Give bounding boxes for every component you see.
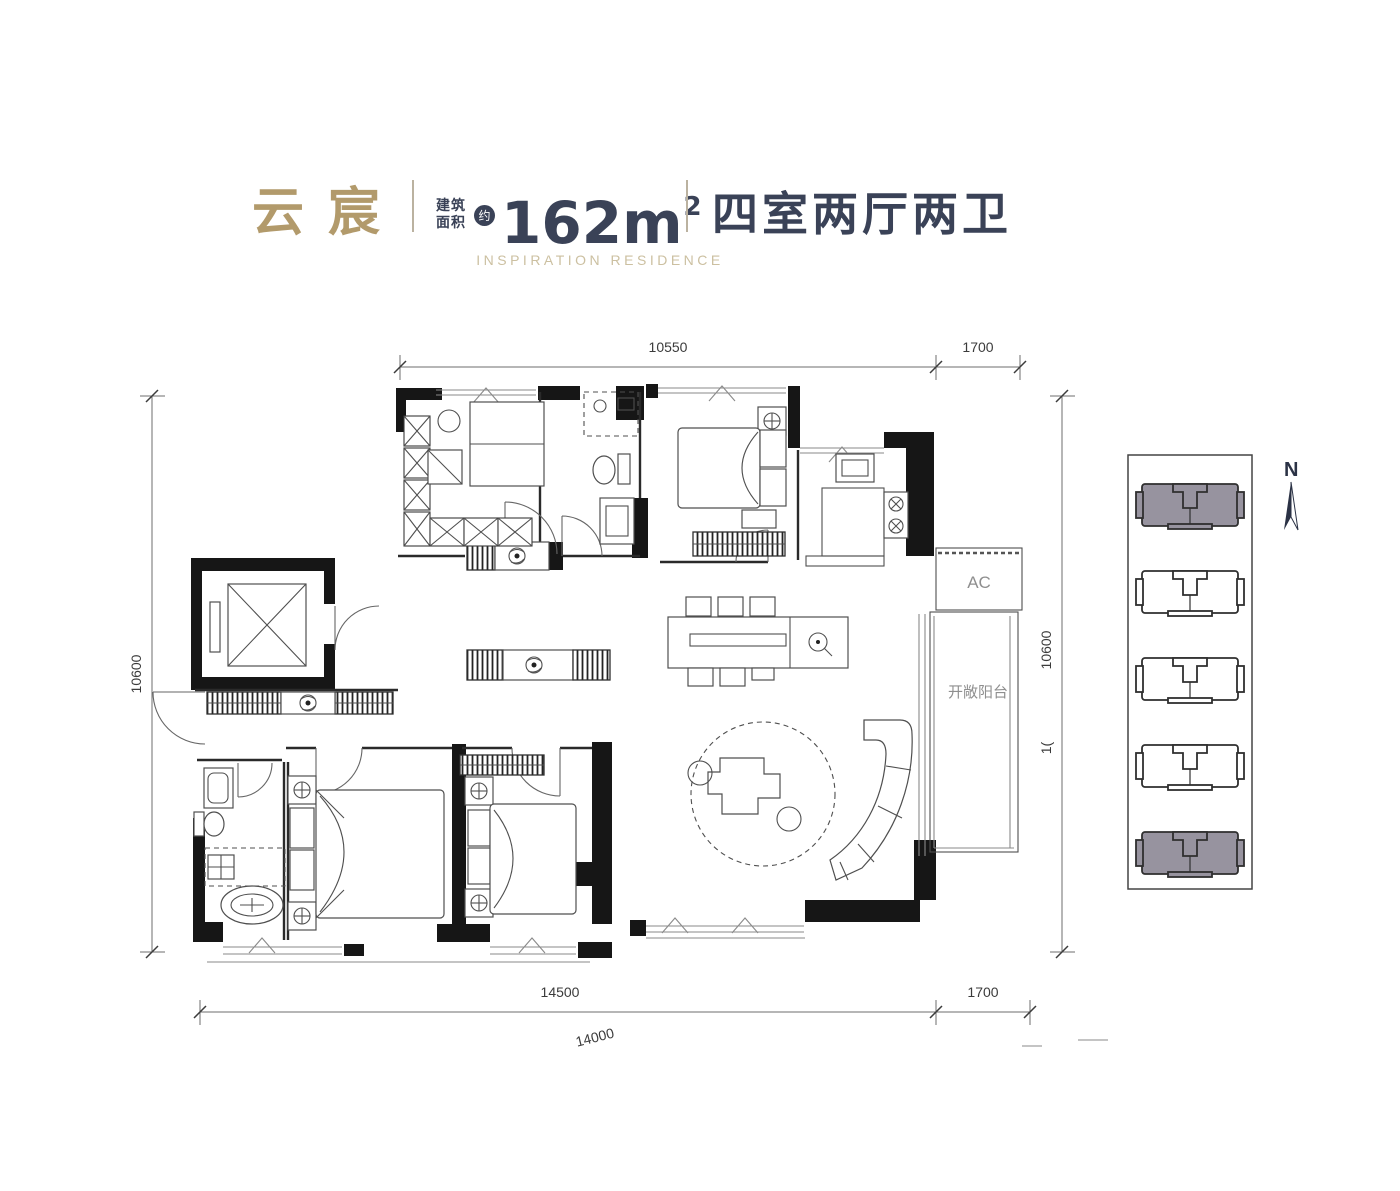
kitchen (806, 454, 908, 566)
compass-label: N (1284, 459, 1298, 481)
living-dining (668, 597, 912, 880)
master-bedroom (288, 776, 444, 930)
study-room (404, 402, 544, 546)
toilet-2 (194, 812, 224, 836)
balcony-label: 开敞阳台 (948, 684, 1008, 701)
stool (438, 410, 460, 432)
dim-right-partial: 1( (1038, 741, 1054, 754)
compass-needle-light (1291, 482, 1298, 530)
site-block-1 (1136, 484, 1244, 529)
compass-needle-dark (1284, 482, 1291, 530)
elevator (210, 584, 306, 666)
site-block-4 (1136, 745, 1244, 790)
dim-top-right: 1700 (962, 339, 993, 355)
dim-bottom-note: 14000 (574, 1025, 616, 1050)
site-block-3 (1136, 658, 1244, 703)
dim-bottom-right: 1700 (967, 984, 998, 1000)
dim-right: 10600 (1038, 630, 1054, 669)
balcony: 开敞阳台 (930, 612, 1018, 852)
bed-2 (678, 428, 786, 508)
site-block-2 (1136, 571, 1244, 616)
bedroom-2 (678, 407, 786, 528)
cooktop (884, 492, 908, 538)
site-plan (1128, 455, 1252, 889)
floorplan-page: 云宸 建筑 面积 约 162m2 四室两厅两卫 INSPIRATION RESI… (0, 0, 1400, 1191)
dim-bottom-main: 14500 (541, 984, 580, 1000)
coffee-table (688, 758, 801, 831)
kitchen-counter (822, 488, 884, 556)
nightstand (742, 510, 776, 528)
ac-label: AC (967, 573, 991, 592)
site-block-5 (1136, 832, 1244, 877)
sofa (830, 720, 912, 880)
bathtub (221, 886, 283, 924)
compass: N (1284, 459, 1298, 530)
bedroom-3 (465, 777, 576, 917)
floorplan-drawing: 10550 1700 10600 10600 1( 14500 1700 140… (0, 0, 1400, 1191)
toilet (593, 454, 630, 484)
ac-zone: AC (936, 548, 1022, 610)
dining-table (668, 617, 848, 668)
bathroom-2 (194, 768, 285, 924)
dim-left: 10600 (128, 654, 144, 693)
wash-basin (600, 498, 634, 544)
dim-top-main: 10550 (649, 339, 688, 355)
master-bed (290, 790, 444, 918)
